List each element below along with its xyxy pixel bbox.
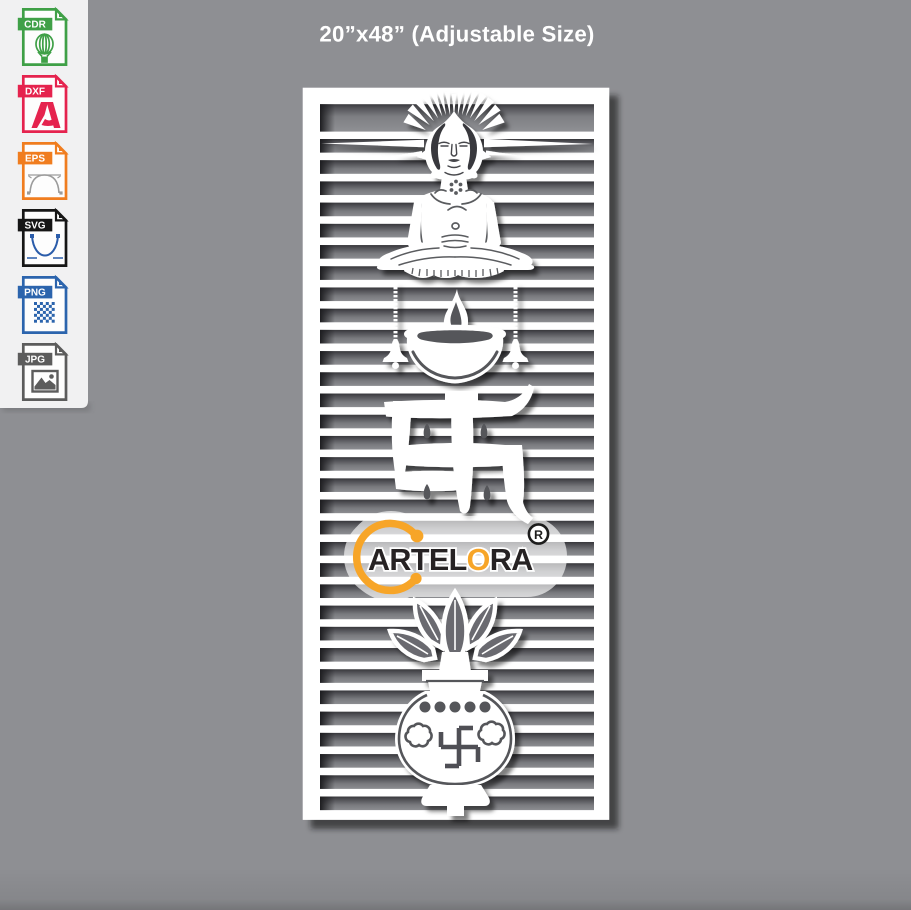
svg-text:ARTELORA: ARTELORA (368, 543, 533, 577)
svg-text:PNG: PNG (24, 288, 46, 299)
svg-text:EPS: EPS (25, 154, 45, 165)
svg-text:JPG: JPG (25, 355, 45, 366)
svg-text:20”x48” (Adjustable Size): 20”x48” (Adjustable Size) (319, 22, 594, 47)
svg-text:SVG: SVG (24, 221, 45, 232)
svg-text:CDR: CDR (24, 20, 46, 31)
svg-text:R: R (534, 528, 543, 542)
svg-text:DXF: DXF (25, 87, 45, 98)
